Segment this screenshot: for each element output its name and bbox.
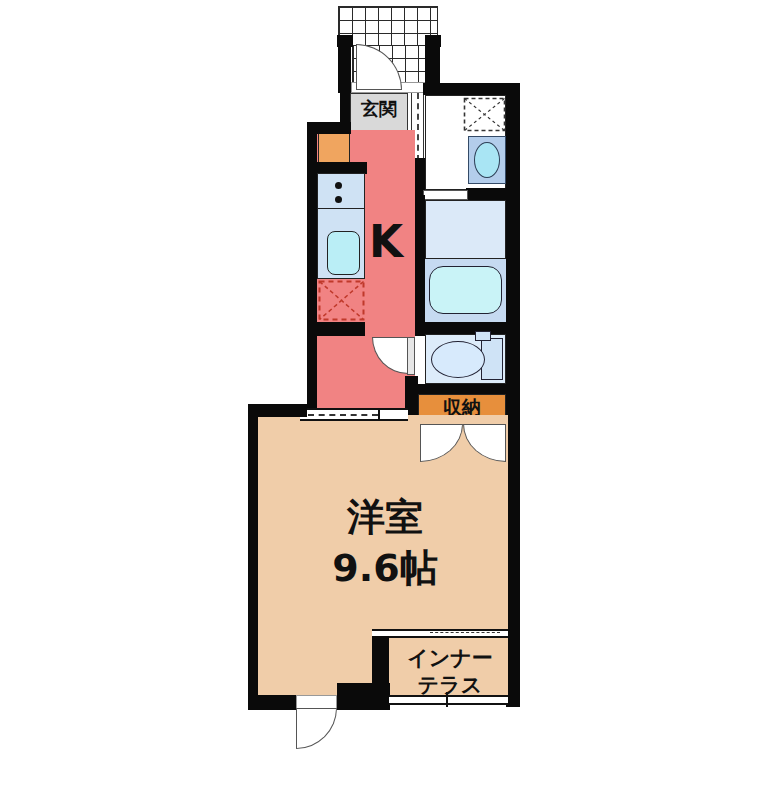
terrace-wall-left <box>372 636 389 700</box>
bathtub-icon <box>429 266 502 314</box>
vanity-sink-icon <box>468 136 506 184</box>
toilet-wall-bottom <box>415 384 508 394</box>
kitchen-sink-icon <box>327 231 360 275</box>
terrace-window-icon <box>389 695 508 705</box>
main-room-name: 洋室 <box>295 492 475 543</box>
terrace-partition-icon <box>372 629 508 638</box>
floor-plan-canvas: 玄関 K <box>0 0 768 800</box>
porch-wall-left <box>338 45 351 93</box>
terrace-label: インナー テラス <box>396 645 504 700</box>
counter-divider <box>318 208 364 209</box>
bath-wall-left <box>415 195 425 322</box>
counter-wall-stub-bottom <box>307 322 365 336</box>
toilet-bowl-icon <box>431 341 485 378</box>
sliding-door-tick <box>378 410 380 419</box>
porch-tile-area-upper <box>338 6 438 46</box>
kitchen-label-text: K <box>369 216 403 267</box>
toilet-door-leaf <box>407 337 415 375</box>
main-room-wall-bottom-left <box>248 695 296 710</box>
genkan-label: 玄関 <box>350 99 408 119</box>
kitchen-sliding-door-icon <box>300 408 408 421</box>
washroom-wall-top <box>423 83 508 95</box>
genkan-label-text: 玄関 <box>361 98 397 119</box>
main-room-size: 9.6帖 <box>295 543 475 594</box>
kitchen-label: K <box>358 218 414 266</box>
exterior-door-arc-icon <box>296 708 337 749</box>
stove-burner-icon <box>335 196 342 203</box>
toilet-button-icon <box>475 331 491 341</box>
terrace-partition-dash <box>430 632 500 633</box>
refrigerator-space-icon <box>318 280 365 321</box>
bath-washroom-wall <box>466 188 508 200</box>
washing-machine-space-icon <box>463 97 506 132</box>
main-room-label: 洋室 9.6帖 <box>295 492 475 595</box>
outer-wall-right <box>506 83 520 707</box>
shoe-cabinet <box>318 132 350 165</box>
stove-burner-icon <box>335 182 342 189</box>
sliding-door-dash <box>308 414 378 416</box>
terrace-window-tick <box>446 692 448 707</box>
terrace-label-line1: インナー <box>396 645 504 672</box>
main-room-wall-left <box>248 404 258 710</box>
